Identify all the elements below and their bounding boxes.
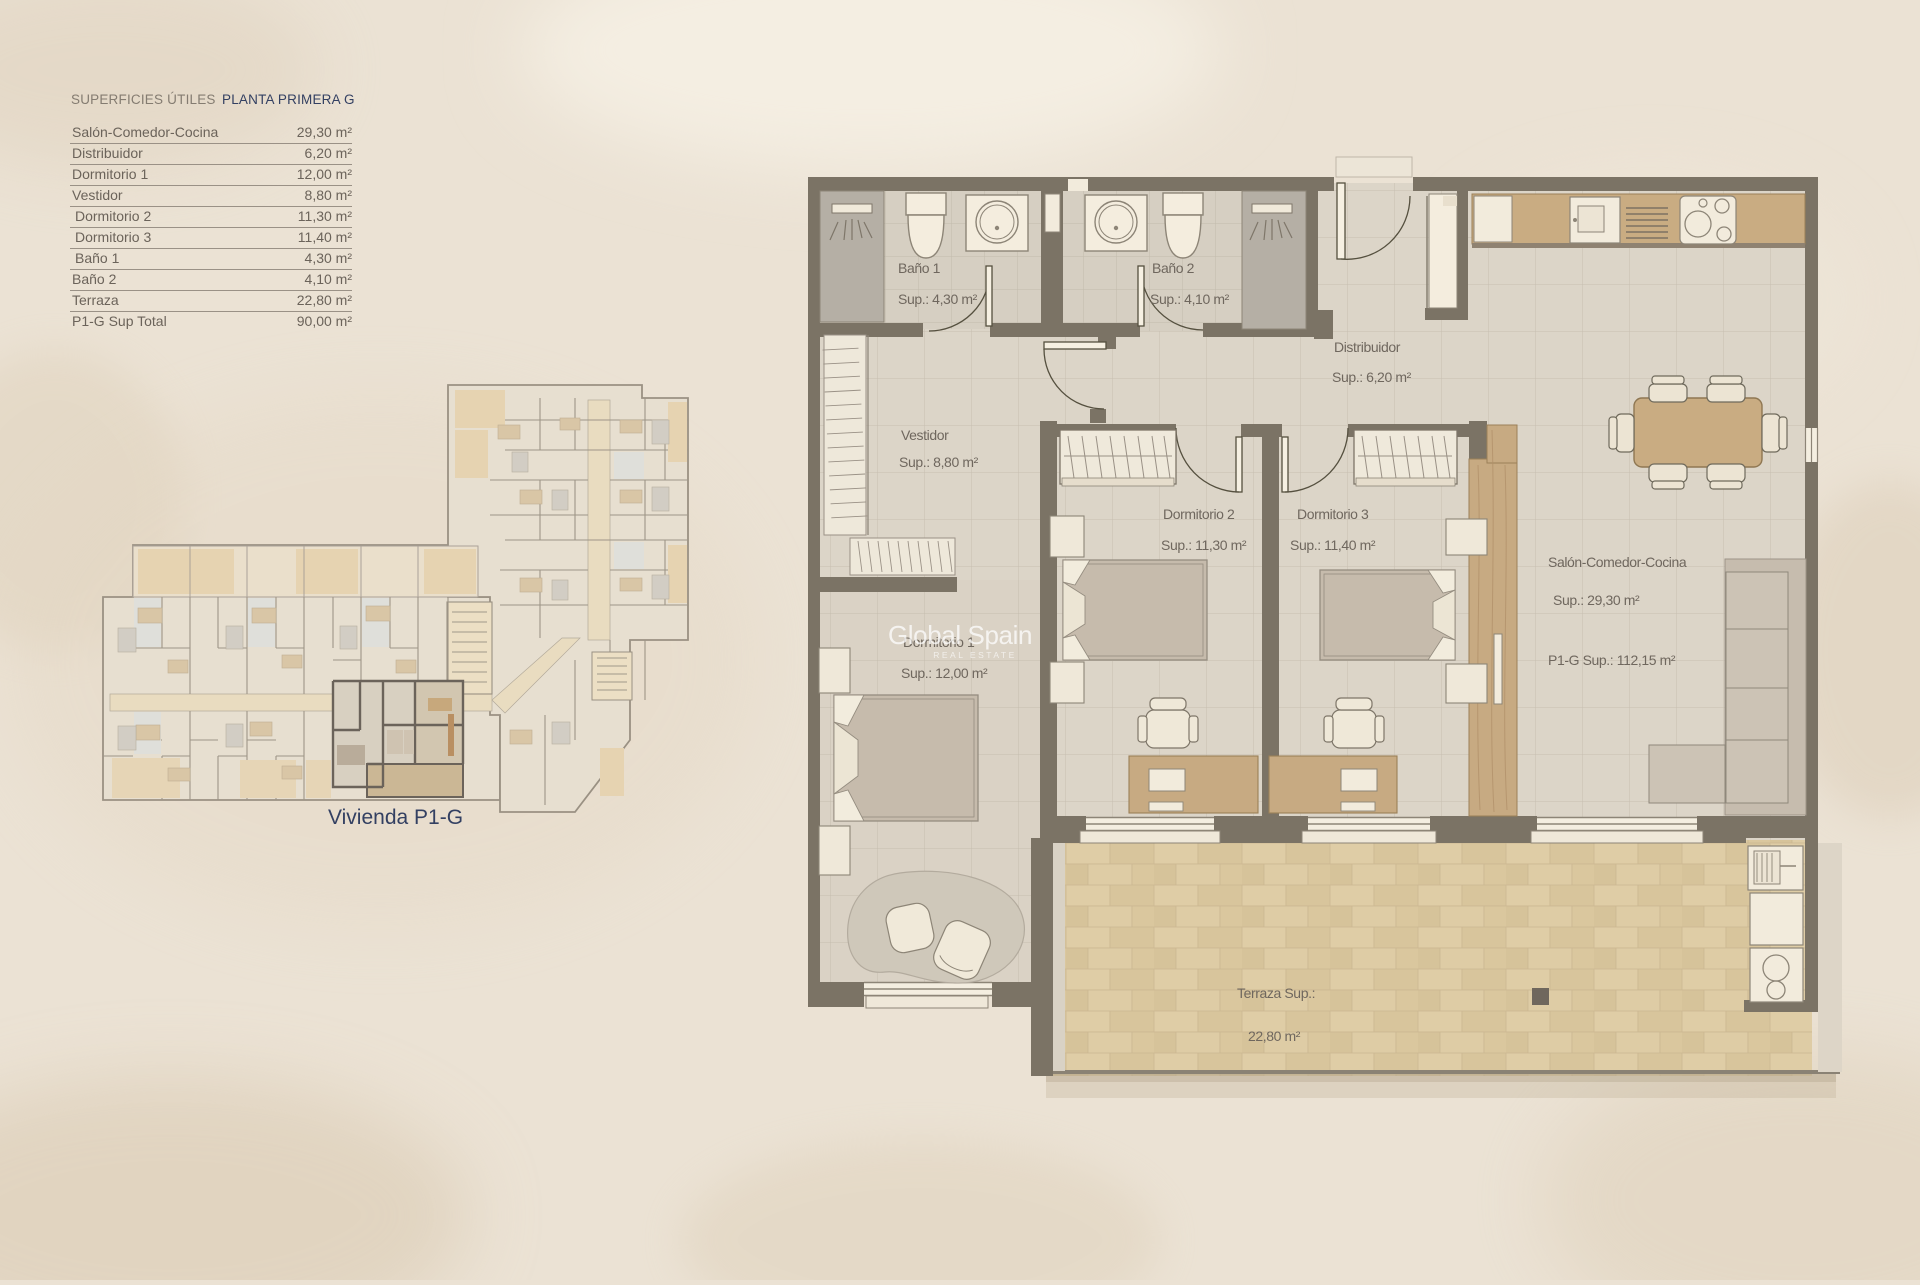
svg-text:Salón-Comedor-Cocina: Salón-Comedor-Cocina (1548, 554, 1687, 570)
svg-text:Sup.: 6,20 m²: Sup.: 6,20 m² (1332, 369, 1412, 385)
svg-text:12,00 m²: 12,00 m² (297, 166, 353, 182)
svg-text:Baño 1: Baño 1 (898, 260, 941, 276)
svg-text:Distribuidor: Distribuidor (72, 145, 143, 161)
svg-text:Vivienda P1-G: Vivienda P1-G (328, 806, 463, 829)
svg-text:Terraza Sup.:: Terraza Sup.: (1237, 985, 1315, 1001)
svg-text:6,20 m²: 6,20 m² (305, 145, 353, 161)
svg-text:Vestidor: Vestidor (901, 427, 949, 443)
svg-text:P1-G Sup.: 112,15 m²: P1-G Sup.: 112,15 m² (1548, 652, 1676, 668)
svg-text:Dormitorio 3: Dormitorio 3 (1297, 506, 1369, 522)
svg-text:Dormitorio 3: Dormitorio 3 (75, 229, 151, 245)
svg-text:Dormitorio 2: Dormitorio 2 (75, 208, 151, 224)
svg-text:90,00 m²: 90,00 m² (297, 313, 353, 329)
svg-text:4,30 m²: 4,30 m² (305, 250, 353, 266)
svg-text:29,30 m²: 29,30 m² (297, 124, 353, 140)
svg-text:Sup.: 11,40 m²: Sup.: 11,40 m² (1290, 537, 1376, 553)
svg-text:Vestidor: Vestidor (72, 187, 123, 203)
svg-text:4,10 m²: 4,10 m² (305, 271, 353, 287)
svg-text:11,30 m²: 11,30 m² (298, 208, 353, 224)
svg-text:Sup.: 4,30 m²: Sup.: 4,30 m² (898, 291, 978, 307)
svg-text:Salón-Comedor-Cocina: Salón-Comedor-Cocina (72, 124, 219, 140)
svg-text:Sup.: 12,00 m²: Sup.: 12,00 m² (901, 665, 988, 681)
svg-text:22,80 m²: 22,80 m² (297, 292, 353, 308)
svg-text:Sup.: 29,30 m²: Sup.: 29,30 m² (1553, 592, 1640, 608)
svg-text:Sup.: 4,10 m²: Sup.: 4,10 m² (1150, 291, 1230, 307)
svg-text:Global Spain: Global Spain (888, 620, 1032, 650)
svg-text:SUPERFICIES ÚTILES: SUPERFICIES ÚTILES (71, 92, 216, 107)
svg-text:Baño 1: Baño 1 (75, 250, 120, 266)
svg-text:Terraza: Terraza (72, 292, 119, 308)
svg-text:11,40 m²: 11,40 m² (298, 229, 353, 245)
svg-text:PLANTA PRIMERA G: PLANTA PRIMERA G (222, 92, 355, 107)
svg-text:Baño 2: Baño 2 (1152, 260, 1195, 276)
svg-text:Dormitorio 1: Dormitorio 1 (72, 166, 148, 182)
svg-text:P1-G Sup Total: P1-G Sup Total (72, 313, 167, 329)
svg-text:Sup.: 8,80 m²: Sup.: 8,80 m² (899, 454, 979, 470)
svg-text:8,80 m²: 8,80 m² (305, 187, 353, 203)
svg-text:REAL ESTATE: REAL ESTATE (933, 650, 1017, 660)
svg-text:Baño 2: Baño 2 (72, 271, 117, 287)
svg-text:Dormitorio 2: Dormitorio 2 (1163, 506, 1235, 522)
svg-text:22,80 m²: 22,80 m² (1248, 1028, 1301, 1044)
svg-text:Distribuidor: Distribuidor (1334, 339, 1401, 355)
svg-text:Sup.: 11,30 m²: Sup.: 11,30 m² (1161, 537, 1247, 553)
